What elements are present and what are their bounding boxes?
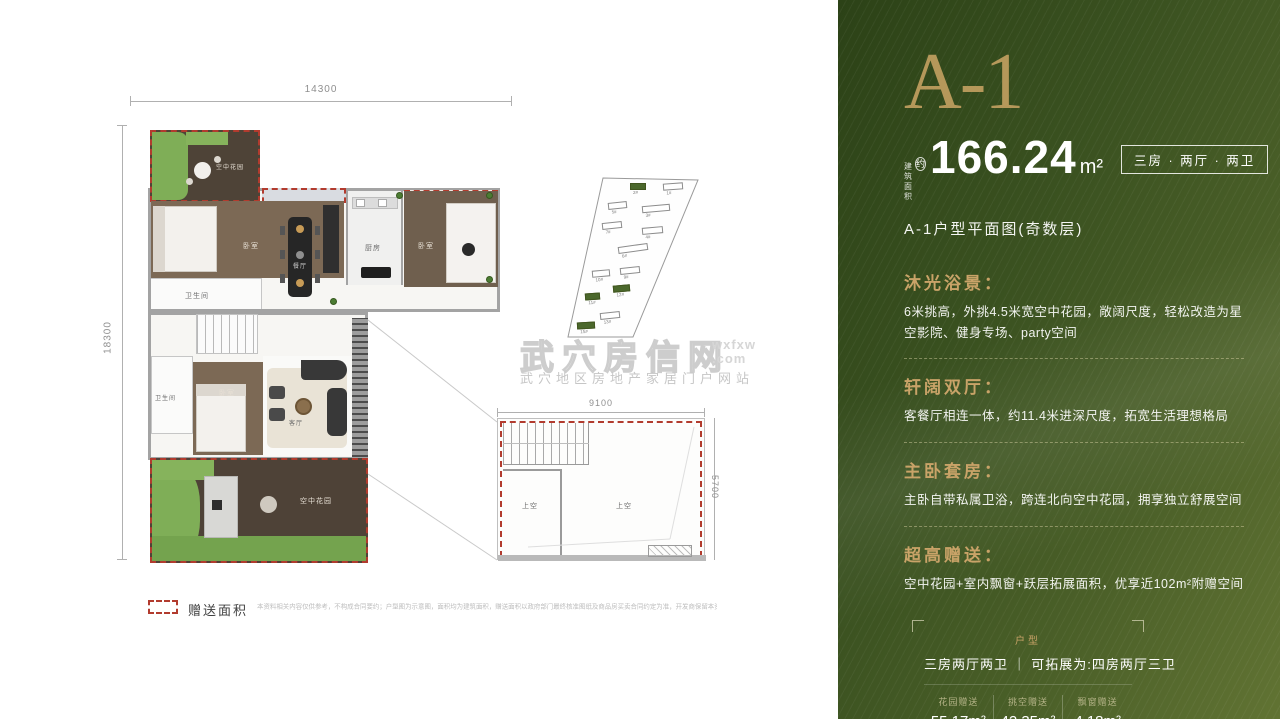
area-row: 建筑 面积 约 166.24 m² 三房 · 两厅 · 两卫 [904,134,1244,206]
site-building: 11# [585,292,600,300]
plan-subtitle: A-1户型平面图(奇数层) [904,218,1244,239]
summary-divider [924,684,1132,685]
feature-title: 超高赠送： [904,541,1244,566]
feature-body: 主卧自带私属卫浴，跨连北向空中花园，拥享独立舒展空间 [904,490,1244,511]
watermark-subtitle: 武穴地区房地产家居门户网站 [520,368,754,387]
legend-gift-swatch [148,600,178,614]
inset-dim-height: 5700 [710,462,720,512]
area-prefix: 建筑 面积 [904,162,912,202]
gift-stats: 花园赠送 55.17m² 挑空赠送 42.35m² 飘窗赠送 4.18m² [924,695,1132,719]
feature-section: 主卧套房： 主卧自带私属卫浴，跨连北向空中花园，拥享独立舒展空间 [904,442,1244,511]
feature-title: 沐光浴景： [904,269,1244,294]
inset-dim-width: 9100 [497,398,705,408]
approx-badge: 约 [915,157,926,171]
poster: 14300 18300 空中花园 卧室 [0,0,1280,719]
feature-title: 主卧套房： [904,457,1244,482]
legend-label: 赠送面积 [188,600,248,619]
feature-body: 6米挑高，外挑4.5米宽空中花园，敞阔尺度，轻松改造为星空影院、健身专场、par… [904,302,1244,343]
watermark-domain-line2: .com [712,352,756,366]
site-building: 15# [577,322,595,330]
gift-stat: 飘窗赠送 4.18m² [1062,695,1132,719]
unit-summary-box: 户型 三房两厅两卫 ｜ 可拓展为:四房两厅三卫 花园赠送 55.17m² 挑空赠… [912,620,1144,719]
gift-stat-label: 花园赠送 [924,695,993,708]
gift-stat-value: 55.17m² [924,713,993,719]
gift-stat-value: 42.35m² [994,713,1063,719]
feature-section: 轩阔双厅： 客餐厅相连一体，约11.4米进深尺度，拓宽生活理想格局 [904,358,1244,427]
unit-code: A-1 [904,44,1244,120]
gift-stat: 挑空赠送 42.35m² [993,695,1063,719]
area-unit: m² [1080,156,1103,179]
hatched-platform [648,545,692,557]
feature-body: 空中花园+室内飘窗+跃层拓展面积，优享近102m²附赠空间 [904,574,1244,595]
area-value: 166.24 [930,134,1077,180]
site-building: 2# [630,183,646,190]
site-key-plan: 2# 1# 5# 3# 7# 4# 6# 10# 9# 12# 11# 13# … [565,165,705,345]
box-corner [912,620,924,632]
gift-stat-label: 挑空赠送 [994,695,1063,708]
feature-body: 客餐厅相连一体，约11.4米进深尺度，拓宽生活理想格局 [904,406,1244,427]
summary-header: 户型 [924,632,1132,647]
dimension-line [497,412,705,413]
feature-section: 沐光浴景： 6米挑高，外挑4.5米宽空中花园，敞阔尺度，轻松改造为星空影院、健身… [904,269,1244,343]
disclaimer: 本资料相关内容仅供参考，不构成合同要约；户型图为示意图，面积均为建筑面积，赠送面… [257,602,717,611]
area-prefix-line1: 建筑 [904,162,912,182]
gift-stat: 花园赠送 55.17m² [924,695,993,719]
inset-guide-lines [498,419,706,561]
dimension-tick [497,408,498,417]
feature-section: 超高赠送： 空中花园+室内飘窗+跃层拓展面积，优享近102m²附赠空间 [904,526,1244,595]
gift-stat-label: 飘窗赠送 [1063,695,1132,708]
layout-tag: 三房 · 两厅 · 两卫 [1121,145,1268,174]
summary-line: 三房两厅两卫 ｜ 可拓展为:四房两厅三卫 [924,654,1132,673]
area-prefix-line2: 面积 [904,182,912,202]
unit-info-panel: A-1 建筑 面积 约 166.24 m² 三房 · 两厅 · 两卫 A-1户型… [838,0,1280,719]
dimension-tick [704,408,705,417]
box-corner [1132,620,1144,632]
feature-title: 轩阔双厅： [904,373,1244,398]
inset-body: 上空 上空 [497,418,705,560]
site-building: 1# [663,182,683,190]
inset-plan: 9100 5700 上空 上空 [490,398,726,580]
gift-stat-value: 4.18m² [1063,713,1132,719]
watermark-domain: wxfxw .com [712,338,756,365]
watermark-domain-line1: wxfxw [712,338,756,352]
floor-plan-sheet: 14300 18300 空中花园 卧室 [0,0,838,719]
site-building: 12# [613,284,631,292]
feature-list: 沐光浴景： 6米挑高，外挑4.5米宽空中花园，敞阔尺度，轻松改造为星空影院、健身… [904,269,1244,594]
